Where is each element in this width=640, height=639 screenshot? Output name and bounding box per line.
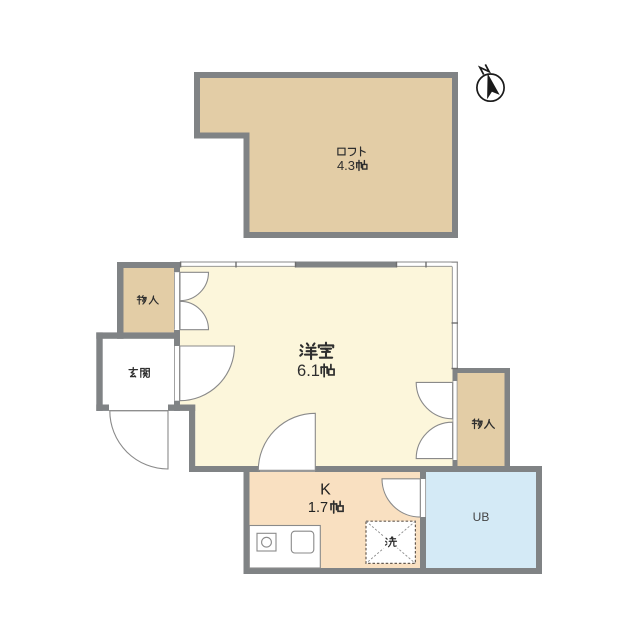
svg-text:1.7: 1.7 bbox=[308, 500, 328, 516]
svg-text:UB: UB bbox=[473, 510, 490, 524]
svg-text:4.3: 4.3 bbox=[337, 158, 355, 173]
svg-text:6.1: 6.1 bbox=[297, 362, 320, 380]
svg-text:K: K bbox=[320, 482, 331, 499]
